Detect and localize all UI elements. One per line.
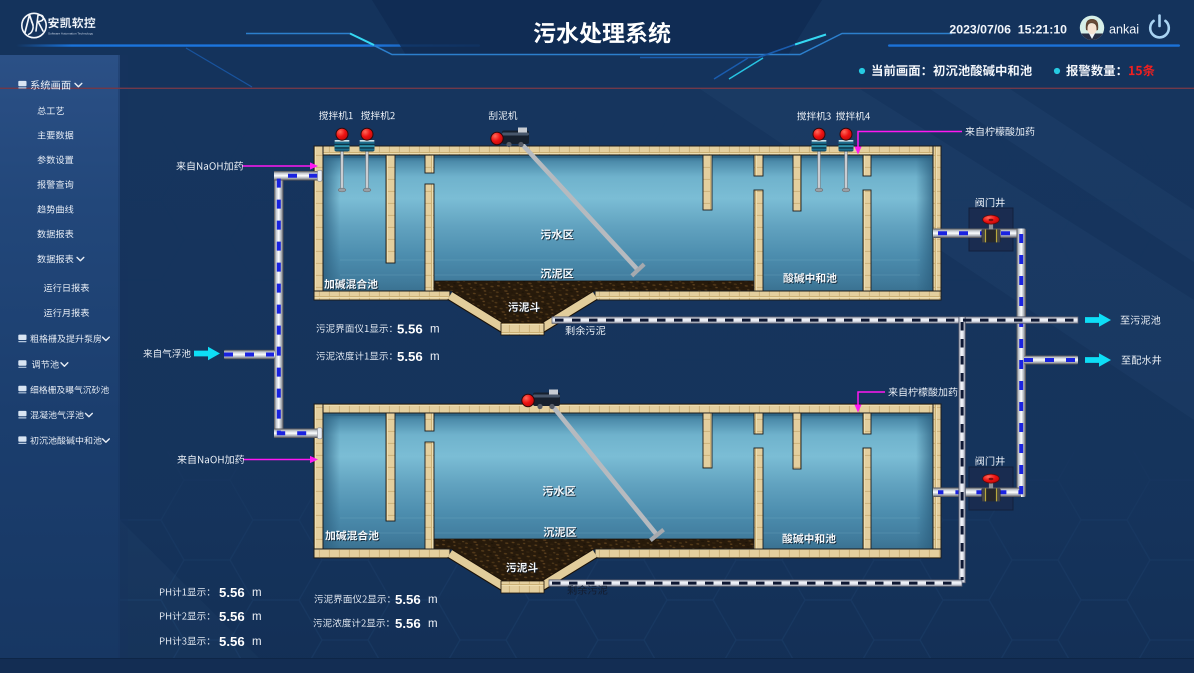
svg-text:m: m (428, 618, 438, 630)
svg-text:m: m (252, 587, 262, 599)
svg-text:5.56: 5.56 (395, 592, 421, 607)
svg-text:m: m (430, 324, 440, 336)
svg-text:m: m (430, 351, 440, 363)
svg-text:Software Automation Technology: Software Automation Technology (48, 32, 93, 36)
svg-text:5.56: 5.56 (219, 634, 245, 649)
svg-text:m: m (252, 611, 262, 623)
svg-text:5.56: 5.56 (395, 616, 421, 631)
svg-text:5.56: 5.56 (397, 349, 423, 364)
svg-text:2023/07/06 15:21:10: 2023/07/06 15:21:10 (949, 23, 1067, 37)
svg-text:m: m (428, 594, 438, 606)
svg-text:m: m (252, 636, 262, 648)
svg-text:5.56: 5.56 (219, 609, 245, 624)
svg-text:ankai: ankai (1109, 23, 1139, 37)
svg-text:5.56: 5.56 (397, 321, 423, 336)
svg-text:5.56: 5.56 (219, 585, 245, 600)
